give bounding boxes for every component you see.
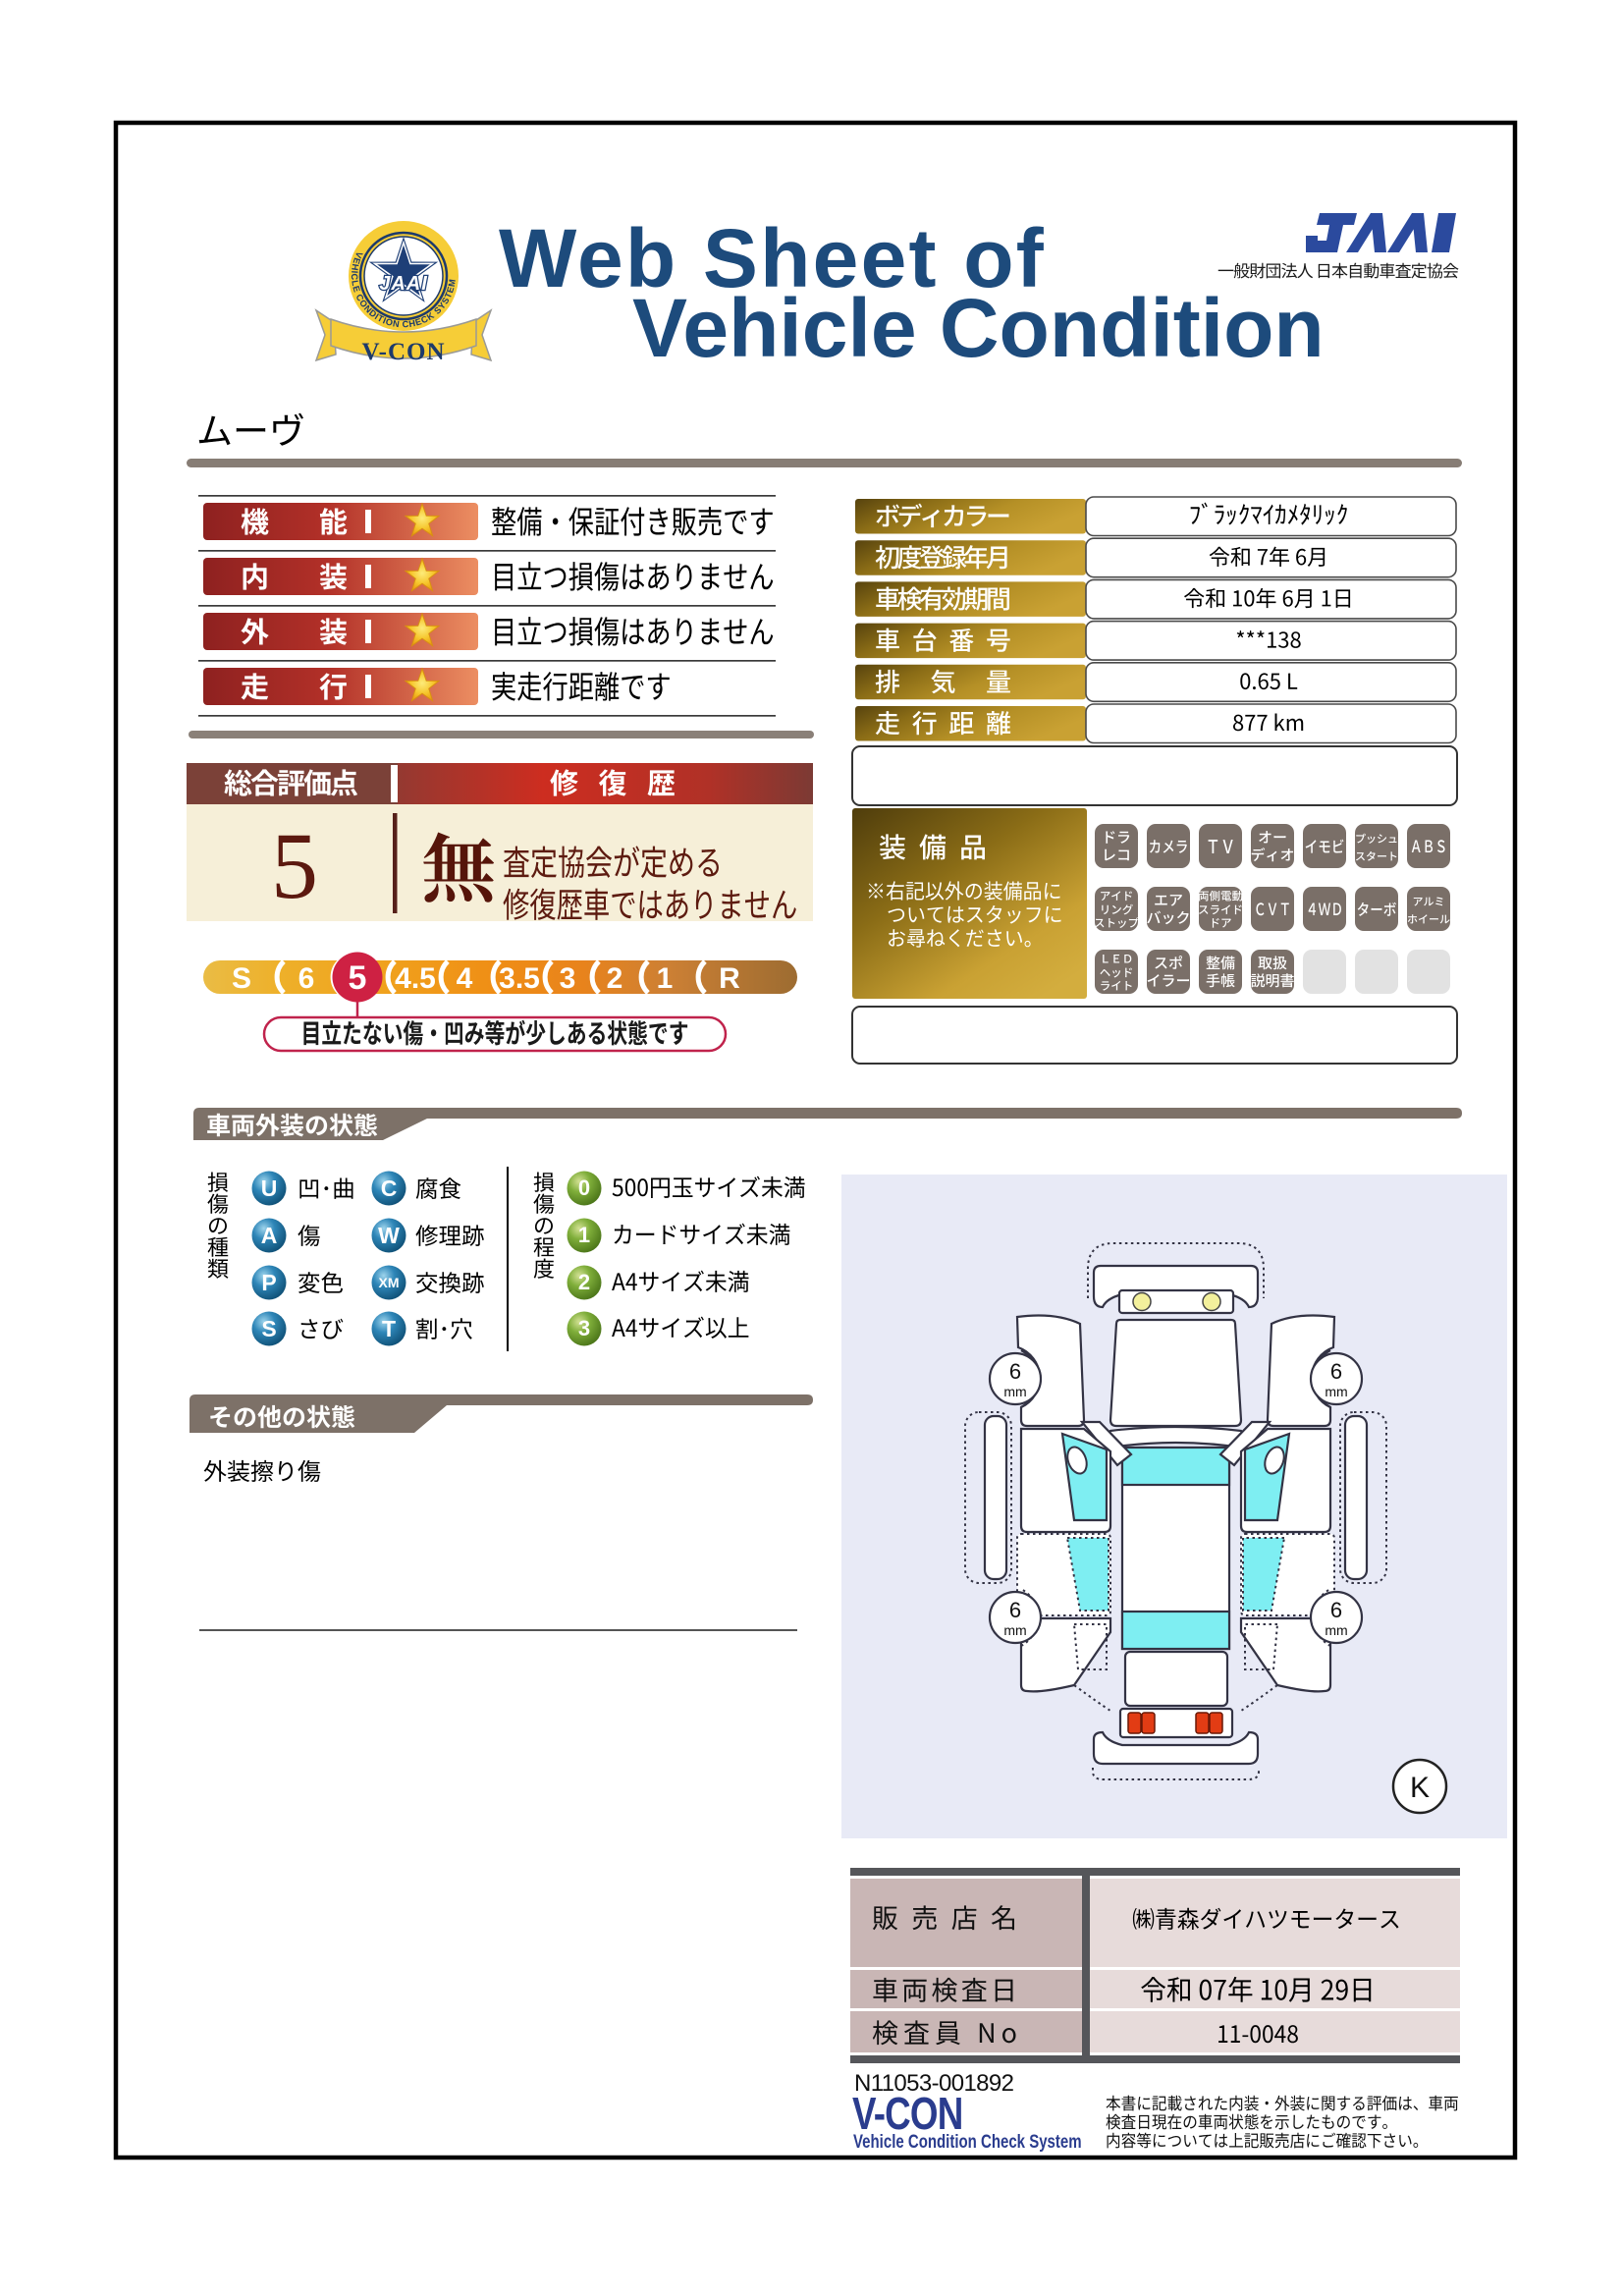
svg-text:3.5: 3.5 — [499, 962, 540, 995]
svg-text:S: S — [232, 962, 251, 995]
svg-text:U: U — [261, 1175, 278, 1201]
svg-text:P: P — [261, 1270, 276, 1295]
svg-text:4: 4 — [457, 962, 473, 995]
svg-text:R: R — [719, 962, 740, 995]
svg-text:4.5: 4.5 — [395, 962, 436, 995]
svg-text:A: A — [261, 1223, 278, 1248]
svg-text:3: 3 — [560, 962, 576, 995]
svg-text:Vehicle Condition Check System: Vehicle Condition Check System — [853, 2131, 1082, 2152]
svg-text:6: 6 — [1009, 1359, 1021, 1384]
svg-text:6: 6 — [1330, 1598, 1342, 1622]
svg-text:0: 0 — [578, 1175, 590, 1200]
svg-text:6: 6 — [298, 962, 315, 995]
svg-text:Vehicle Condition: Vehicle Condition — [632, 282, 1325, 374]
svg-text:XM: XM — [379, 1275, 400, 1290]
svg-text:6: 6 — [1009, 1598, 1021, 1622]
svg-text:mm: mm — [1003, 1622, 1026, 1638]
svg-text:mm: mm — [1325, 1384, 1347, 1399]
svg-text:2: 2 — [578, 1270, 590, 1294]
svg-text:5: 5 — [271, 813, 318, 918]
svg-text:mm: mm — [1003, 1384, 1026, 1399]
svg-text:mm: mm — [1325, 1622, 1347, 1638]
svg-text:V-CON: V-CON — [361, 339, 445, 365]
svg-text:T: T — [382, 1316, 396, 1341]
svg-text:5: 5 — [349, 959, 367, 997]
svg-text:JAAI: JAAI — [379, 273, 428, 295]
svg-text:3: 3 — [578, 1316, 590, 1340]
svg-text:W: W — [378, 1223, 400, 1248]
svg-text:2: 2 — [607, 962, 623, 995]
svg-text:1: 1 — [657, 962, 674, 995]
svg-text:1: 1 — [578, 1223, 590, 1247]
svg-text:6: 6 — [1330, 1359, 1342, 1384]
svg-text:S: S — [261, 1316, 276, 1341]
svg-text:C: C — [381, 1175, 398, 1201]
svg-text:K: K — [1410, 1772, 1430, 1804]
